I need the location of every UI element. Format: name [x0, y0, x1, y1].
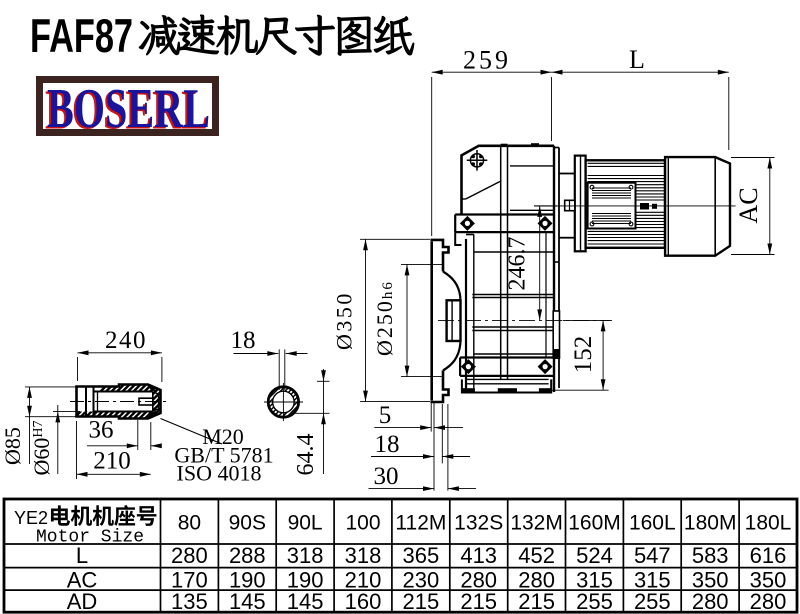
svg-text:583: 583	[692, 543, 729, 568]
svg-text:132M: 132M	[510, 512, 563, 535]
svg-text:90L: 90L	[288, 512, 323, 535]
svg-text:90S: 90S	[229, 512, 266, 535]
svg-text:547: 547	[634, 543, 671, 568]
svg-text:152: 152	[570, 336, 597, 374]
svg-text:318: 318	[345, 543, 382, 568]
svg-text:365: 365	[403, 543, 440, 568]
svg-text:L: L	[629, 45, 645, 74]
svg-text:AD: AD	[67, 589, 98, 614]
svg-text:280: 280	[171, 543, 208, 568]
svg-text:255: 255	[634, 589, 671, 614]
svg-text:180L: 180L	[745, 512, 792, 535]
svg-text:112M: 112M	[395, 512, 446, 535]
svg-text:215: 215	[403, 589, 440, 614]
svg-text:18: 18	[375, 431, 400, 458]
svg-text:210: 210	[93, 448, 131, 475]
svg-text:255: 255	[576, 589, 613, 614]
svg-text:240: 240	[105, 327, 147, 354]
svg-text:413: 413	[460, 543, 497, 568]
svg-text:AC: AC	[734, 187, 763, 223]
svg-text:318: 318	[287, 543, 324, 568]
svg-text:280: 280	[750, 589, 787, 614]
svg-text:YE2: YE2	[14, 508, 48, 528]
svg-text:FAF87: FAF87	[30, 9, 133, 62]
svg-text:246.7: 246.7	[505, 237, 531, 291]
svg-text:259: 259	[463, 46, 511, 75]
svg-text:215: 215	[518, 589, 555, 614]
svg-text:ISO 4018: ISO 4018	[177, 461, 262, 486]
svg-text:145: 145	[287, 589, 324, 614]
svg-text:160L: 160L	[629, 512, 676, 535]
svg-text:BOSERL: BOSERL	[47, 78, 210, 140]
svg-text:452: 452	[518, 543, 555, 568]
svg-text:132S: 132S	[454, 512, 503, 535]
svg-text:Ø85: Ø85	[0, 427, 25, 465]
svg-text:160: 160	[345, 589, 382, 614]
svg-text:80: 80	[178, 512, 201, 535]
svg-text:215: 215	[460, 589, 497, 614]
svg-text:36: 36	[89, 417, 114, 444]
svg-text:30: 30	[374, 463, 399, 490]
svg-text:524: 524	[576, 543, 613, 568]
svg-text:Motor Size: Motor Size	[36, 528, 144, 548]
svg-text:5: 5	[379, 402, 392, 429]
svg-text:L: L	[76, 543, 88, 568]
svg-text:160M: 160M	[568, 512, 621, 535]
svg-text:Ø350: Ø350	[332, 291, 357, 350]
svg-text:64.4: 64.4	[293, 434, 319, 476]
svg-text:100: 100	[345, 512, 380, 535]
svg-text:145: 145	[229, 589, 266, 614]
svg-text:18: 18	[231, 327, 256, 354]
svg-text:280: 280	[692, 589, 729, 614]
svg-text:180M: 180M	[684, 512, 737, 535]
svg-text:616: 616	[750, 543, 787, 568]
svg-text:288: 288	[229, 543, 266, 568]
svg-text:135: 135	[171, 589, 208, 614]
